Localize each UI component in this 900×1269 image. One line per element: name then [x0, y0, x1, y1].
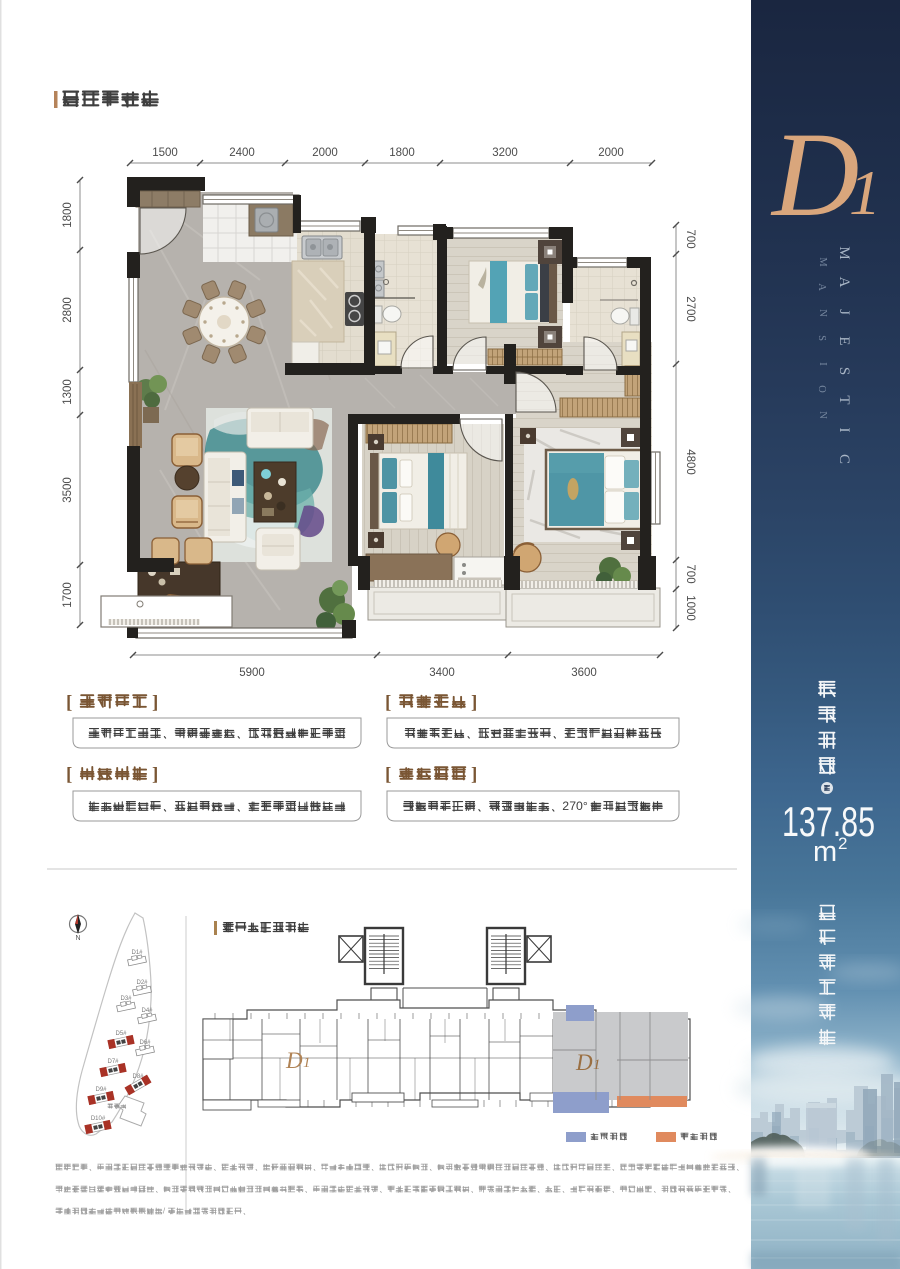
svg-text:N: N	[817, 309, 828, 317]
svg-text:1: 1	[593, 1057, 601, 1073]
svg-text:T: T	[836, 395, 852, 404]
svg-text:1: 1	[849, 157, 881, 228]
svg-text:m: m	[813, 836, 837, 868]
svg-text:700: 700	[684, 229, 696, 248]
svg-text:]: ]	[471, 693, 477, 714]
svg-text:1800: 1800	[62, 202, 74, 228]
svg-text:4800: 4800	[684, 449, 696, 475]
svg-text:A: A	[816, 283, 827, 291]
svg-text:[: [	[66, 765, 72, 786]
svg-text:A: A	[836, 277, 852, 288]
svg-text:2800: 2800	[62, 297, 74, 323]
svg-text:1000: 1000	[684, 595, 696, 621]
svg-text:2400: 2400	[229, 147, 255, 159]
svg-text:N: N	[75, 935, 80, 942]
svg-text:3600: 3600	[571, 667, 597, 679]
svg-text:S: S	[836, 367, 852, 375]
svg-text:[: [	[385, 693, 391, 714]
svg-text:[: [	[66, 693, 72, 714]
svg-text:D2#: D2#	[136, 980, 148, 986]
svg-text:1300: 1300	[62, 379, 74, 405]
svg-text:D: D	[770, 108, 859, 242]
svg-text:2700: 2700	[684, 296, 696, 322]
svg-text:D10#: D10#	[91, 1116, 106, 1122]
svg-text:3200: 3200	[492, 147, 518, 159]
svg-text:3500: 3500	[62, 477, 74, 503]
svg-text:S: S	[816, 335, 827, 341]
svg-text:I: I	[836, 428, 852, 433]
svg-text:°: °	[583, 799, 588, 813]
svg-text:I: I	[817, 362, 828, 366]
svg-text:[: [	[385, 765, 391, 786]
svg-text:M: M	[836, 246, 852, 259]
svg-text:5900: 5900	[239, 667, 265, 679]
svg-text:1700: 1700	[62, 582, 74, 608]
svg-text:1800: 1800	[389, 147, 415, 159]
svg-text:1: 1	[303, 1055, 311, 1071]
svg-text:D5#: D5#	[115, 1031, 127, 1037]
svg-text:D8#: D8#	[132, 1074, 144, 1080]
svg-text:]: ]	[152, 693, 158, 714]
svg-text:2000: 2000	[598, 147, 624, 159]
svg-text:D: D	[285, 1048, 303, 1073]
svg-text:2: 2	[838, 834, 847, 853]
svg-text:2000: 2000	[312, 147, 338, 159]
svg-text:D4#: D4#	[141, 1008, 153, 1014]
svg-text:M: M	[817, 257, 828, 267]
svg-text:O: O	[816, 385, 827, 393]
svg-text:N: N	[817, 411, 828, 419]
svg-text:700: 700	[684, 564, 696, 583]
svg-text:J: J	[836, 309, 852, 315]
svg-text:1500: 1500	[152, 147, 178, 159]
svg-text:3400: 3400	[429, 667, 455, 679]
svg-text:D: D	[575, 1050, 593, 1075]
svg-text:C: C	[836, 454, 852, 464]
svg-text:D3#: D3#	[120, 996, 132, 1002]
svg-text:D9#: D9#	[95, 1087, 107, 1093]
svg-text:D6#: D6#	[139, 1040, 151, 1046]
svg-text:]: ]	[471, 765, 477, 786]
svg-text:D1#: D1#	[131, 950, 143, 956]
svg-text:D7#: D7#	[107, 1059, 119, 1065]
svg-text:]: ]	[152, 765, 158, 786]
svg-text:E: E	[836, 336, 852, 345]
